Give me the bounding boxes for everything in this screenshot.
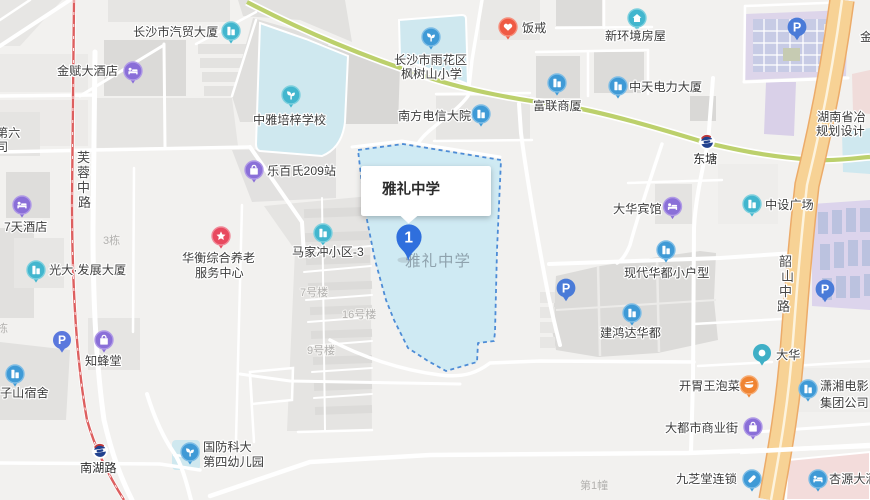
svg-text:16号楼: 16号楼 [342,307,376,321]
svg-text:新环境房屋: 新环境房屋 [605,28,666,43]
svg-text:大华: 大华 [776,347,800,362]
svg-text:栋: 栋 [0,321,8,335]
svg-text:路: 路 [78,195,91,210]
svg-text:知蜂堂: 知蜂堂 [85,354,122,368]
svg-text:韶: 韶 [779,254,792,269]
svg-text:7号楼: 7号楼 [300,285,328,299]
svg-text:中: 中 [77,180,90,195]
svg-text:南湖路: 南湖路 [80,460,117,475]
svg-text:湖南省冶: 湖南省冶 [817,109,866,124]
svg-text:子山宿舍: 子山宿舍 [0,385,49,400]
svg-text:第1幢: 第1幢 [580,478,608,492]
svg-text:饭戒: 饭戒 [522,21,546,35]
svg-text:9号楼: 9号楼 [307,343,335,357]
svg-text:P: P [562,281,570,295]
svg-text:第四幼儿园: 第四幼儿园 [203,455,264,469]
svg-text:中: 中 [779,284,792,299]
svg-text:3栋: 3栋 [103,233,120,247]
svg-text:金: 金 [860,29,870,44]
svg-text:大华宾馆: 大华宾馆 [613,201,662,216]
svg-text:东塘: 东塘 [693,151,717,166]
svg-text:杏源大酒店: 杏源大酒店 [829,472,870,486]
svg-text:7天酒店: 7天酒店 [4,220,47,234]
svg-text:建鸿达华都: 建鸿达华都 [600,325,661,340]
svg-text:山: 山 [781,269,794,284]
svg-text:富联商厦: 富联商厦 [533,98,582,113]
svg-text:中设广场: 中设广场 [765,197,814,212]
svg-text:第六: 第六 [0,126,20,140]
svg-text:光大·发展大厦: 光大·发展大厦 [49,262,126,277]
svg-text:规划设计: 规划设计 [816,123,865,138]
svg-text:现代华都小户型: 现代华都小户型 [624,265,709,280]
svg-text:开胃王泡菜: 开胃王泡菜 [679,379,740,393]
svg-text:南方电信大院: 南方电信大院 [398,108,471,123]
svg-text:国防科大: 国防科大 [203,439,252,454]
svg-text:潇湘电影: 潇湘电影 [820,378,869,393]
svg-text:雅礼中学: 雅礼中学 [382,180,440,198]
svg-text:金赋大酒店: 金赋大酒店 [57,63,118,78]
svg-text:雅礼中学: 雅礼中学 [405,252,471,270]
svg-text:大都市商业街: 大都市商业街 [665,420,738,435]
svg-text:中雅培梓学校: 中雅培梓学校 [253,112,326,127]
svg-text:P: P [821,282,829,296]
svg-text:长沙市汽贸大厦: 长沙市汽贸大厦 [133,24,218,39]
svg-text:服务中心: 服务中心 [195,265,244,280]
svg-text:P: P [793,20,801,34]
svg-text:P: P [58,333,66,347]
svg-text:1: 1 [404,229,413,246]
svg-text:长沙市雨花区: 长沙市雨花区 [394,52,467,67]
svg-text:芙: 芙 [77,150,90,165]
svg-text:司: 司 [0,140,8,154]
svg-text:中天电力大厦: 中天电力大厦 [629,79,702,94]
svg-text:集团公司: 集团公司 [820,395,869,410]
svg-text:乐百氏209站: 乐百氏209站 [267,164,336,178]
svg-text:蓉: 蓉 [77,165,90,180]
svg-text:九芝堂连锁: 九芝堂连锁 [676,471,737,486]
svg-text:马家冲小区-3: 马家冲小区-3 [292,244,364,259]
svg-text:华衡综合养老: 华衡综合养老 [182,250,255,265]
svg-text:枫树山小学: 枫树山小学 [401,66,462,81]
svg-text:路: 路 [777,299,790,314]
